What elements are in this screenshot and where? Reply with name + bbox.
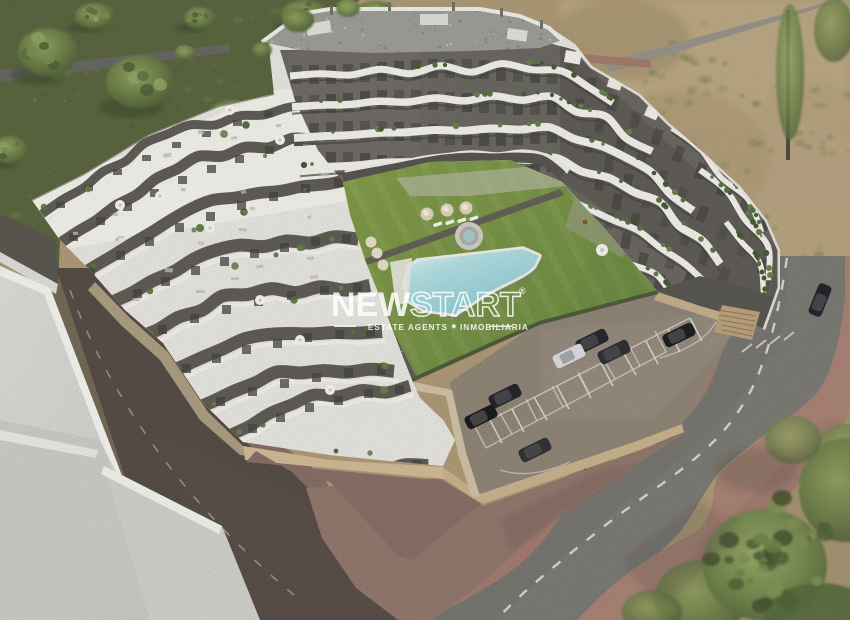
- svg-text:NEW: NEW: [331, 286, 411, 324]
- svg-text:INMOBILIARIA: INMOBILIARIA: [460, 323, 529, 332]
- svg-text:START: START: [410, 286, 521, 324]
- svg-text:®: ®: [519, 286, 526, 296]
- svg-text:ESTATE AGENTS: ESTATE AGENTS: [368, 323, 448, 332]
